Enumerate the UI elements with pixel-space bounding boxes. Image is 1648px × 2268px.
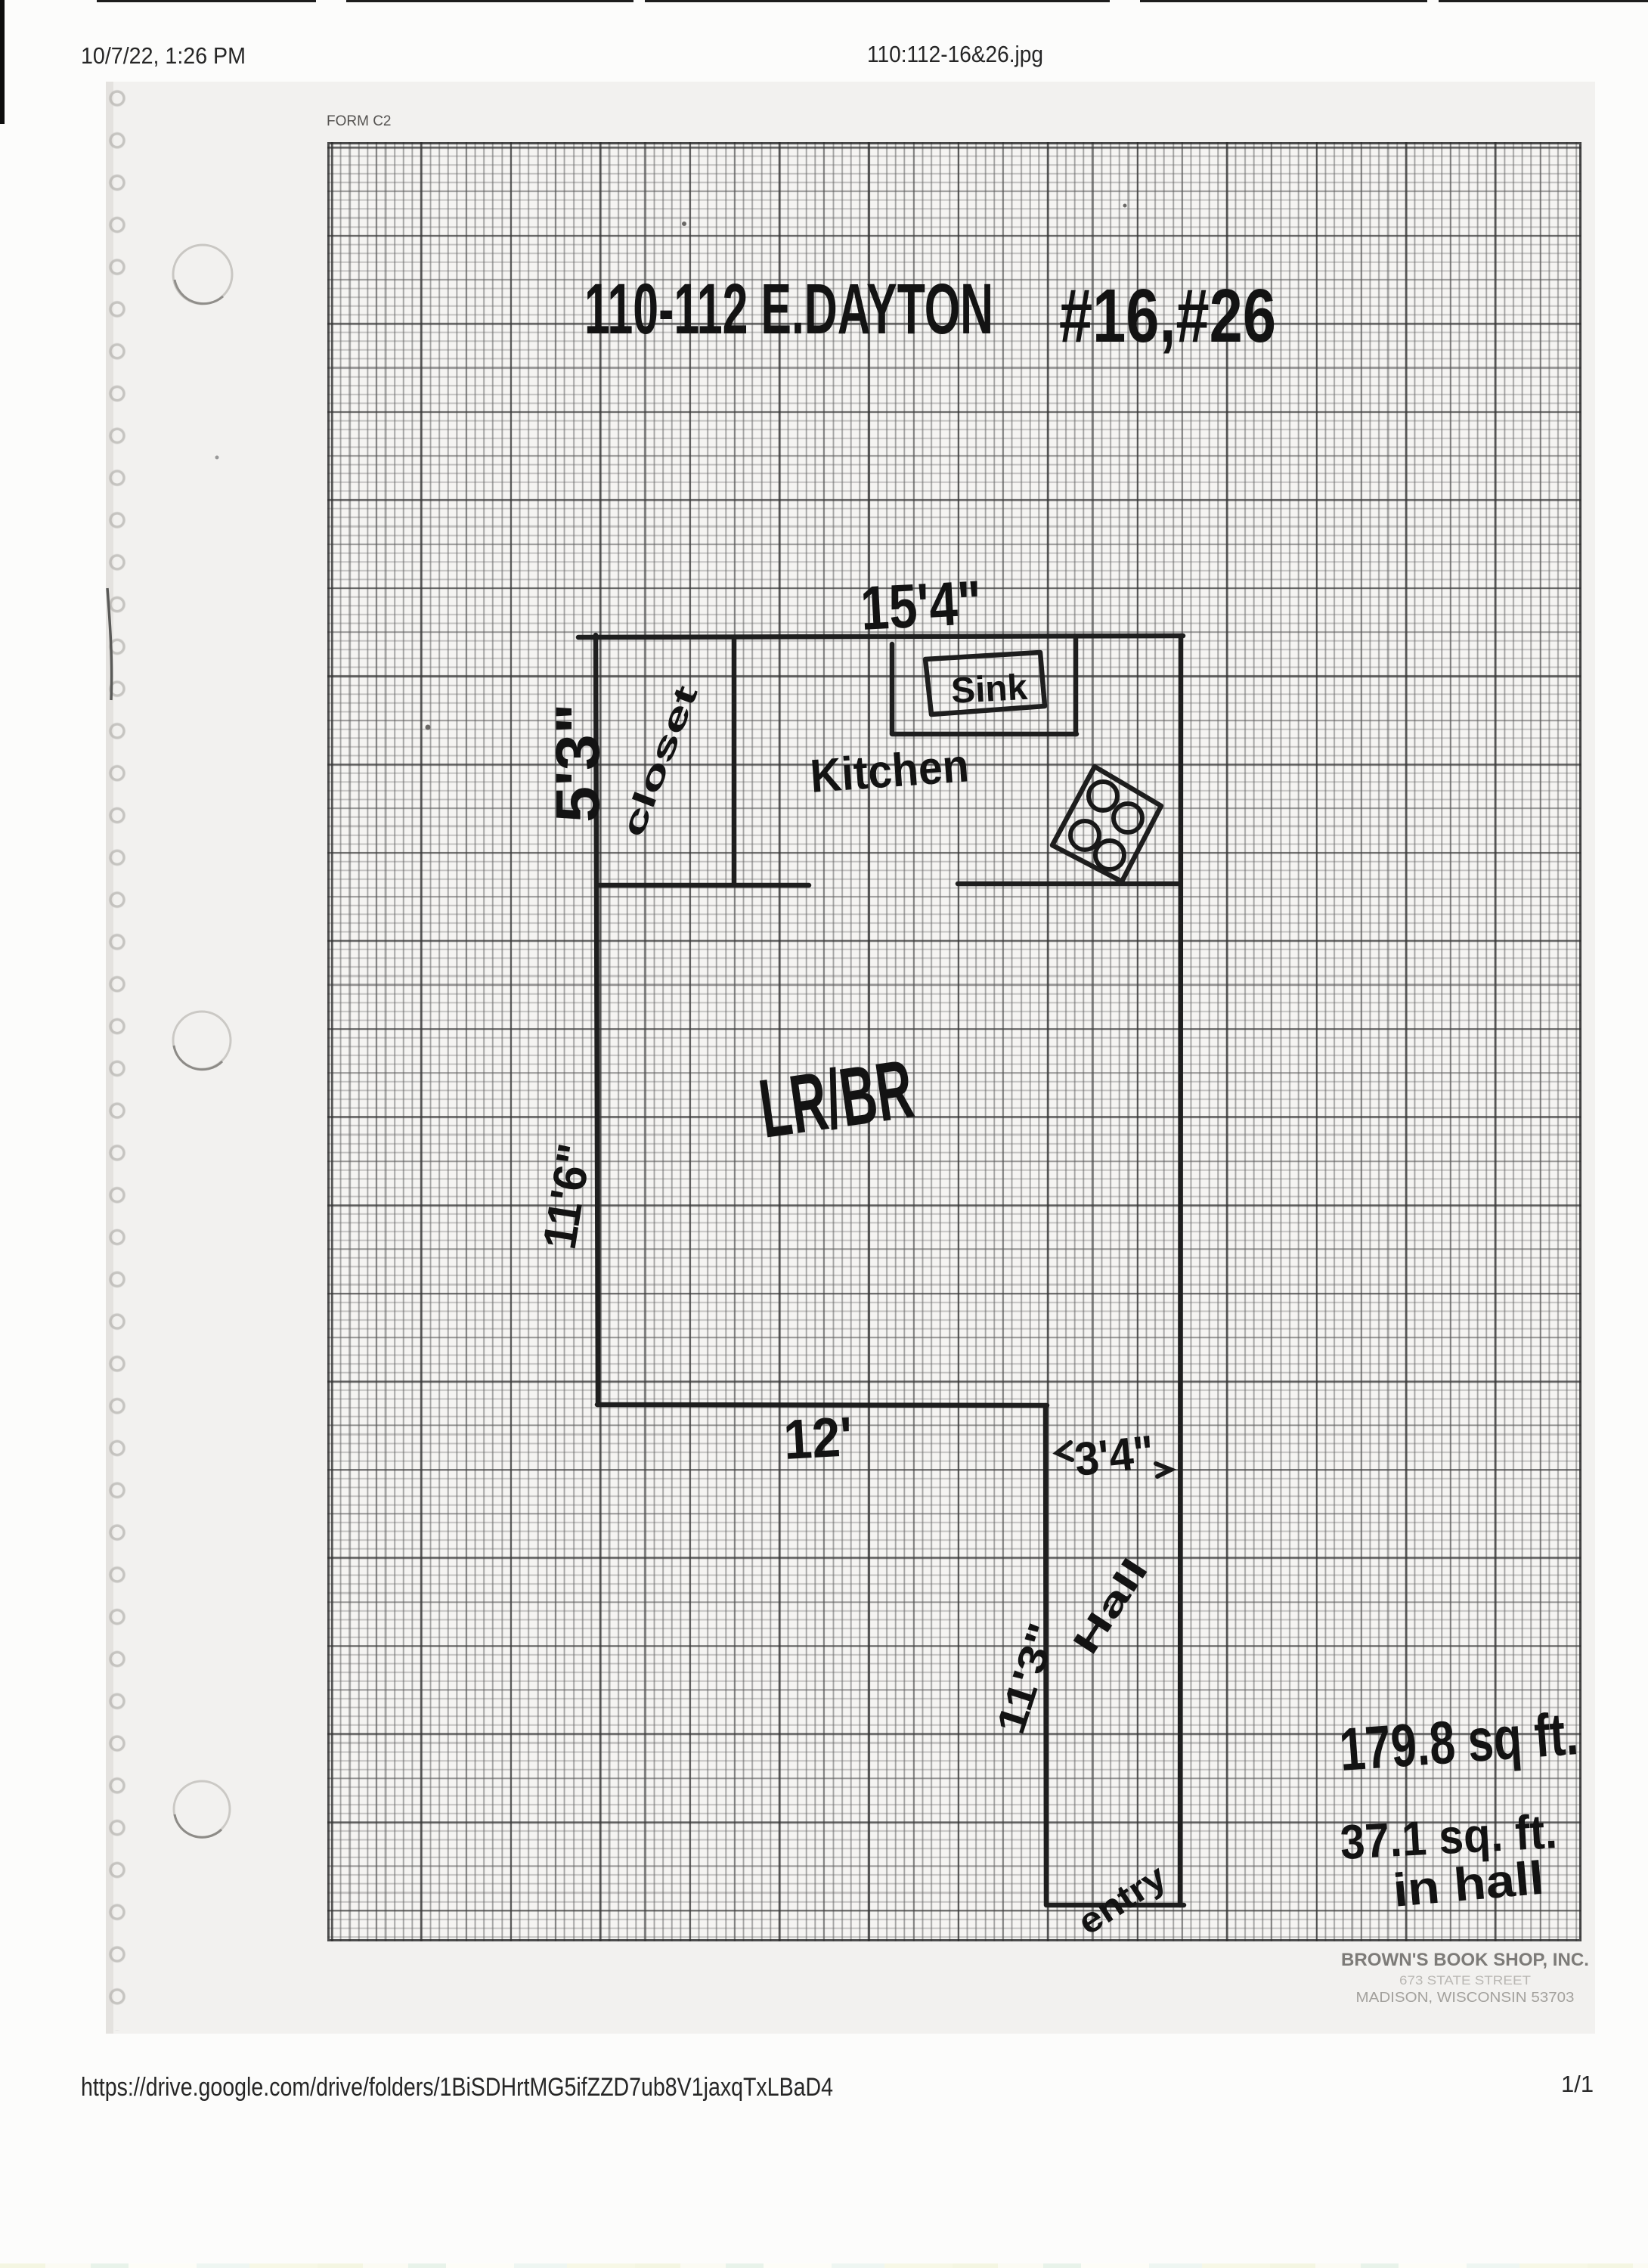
- svg-text:11'3": 11'3": [988, 1618, 1065, 1740]
- svg-text:5'3": 5'3": [544, 703, 612, 823]
- svg-text:https://drive.google.com/drive: https://drive.google.com/drive/folders/1…: [81, 2073, 833, 2102]
- svg-text:FORM C2: FORM C2: [327, 113, 392, 129]
- svg-text:3'4": 3'4": [1072, 1426, 1157, 1486]
- svg-text:BROWN'S BOOK SHOP, INC.: BROWN'S BOOK SHOP, INC.: [1341, 1950, 1589, 1970]
- svg-text:10/7/22, 1:26 PM: 10/7/22, 1:26 PM: [81, 42, 246, 69]
- svg-text:15'4": 15'4": [859, 569, 984, 643]
- svg-text:MADISON, WISCONSIN 53703: MADISON, WISCONSIN 53703: [1356, 1990, 1575, 2005]
- svg-text:LR/BR: LR/BR: [754, 1043, 918, 1156]
- svg-text:110-112 E.DAYTON: 110-112 E.DAYTON: [584, 269, 993, 349]
- svg-text:673 STATE STREET: 673 STATE STREET: [1399, 1973, 1531, 1988]
- svg-text:Hall: Hall: [1064, 1551, 1156, 1661]
- svg-text:Sink: Sink: [950, 668, 1029, 711]
- svg-text:110:112-16&26.jpg: 110:112-16&26.jpg: [867, 41, 1043, 67]
- svg-text:#16,#26: #16,#26: [1059, 274, 1276, 358]
- svg-text:1/1: 1/1: [1561, 2071, 1594, 2097]
- svg-text:179.8 sq ft.: 179.8 sq ft.: [1337, 1699, 1580, 1783]
- svg-text:12': 12': [782, 1405, 853, 1471]
- svg-text:closet: closet: [615, 680, 705, 841]
- svg-text:entry: entry: [1070, 1856, 1173, 1942]
- svg-text:Kitchen: Kitchen: [809, 739, 971, 802]
- svg-text:11'6": 11'6": [534, 1140, 602, 1253]
